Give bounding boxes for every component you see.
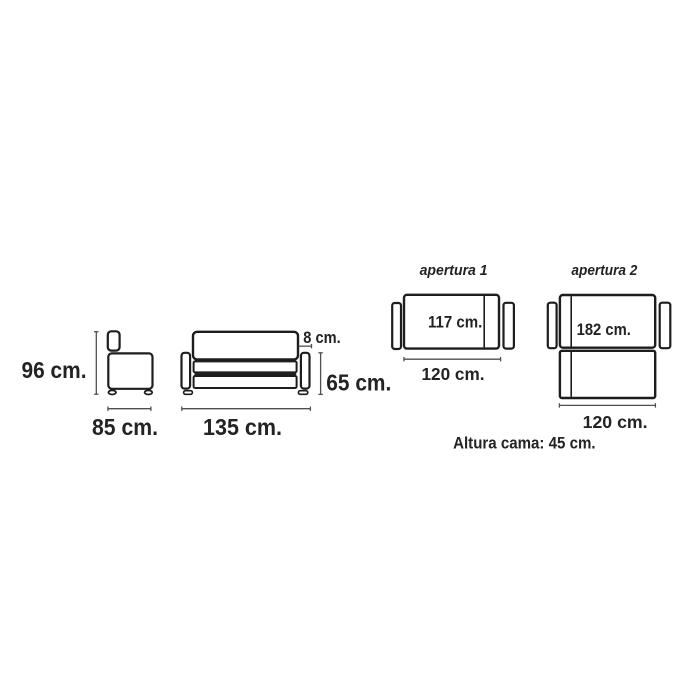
svg-text:apertura 1: apertura 1 (420, 262, 488, 279)
svg-text:120 cm.: 120 cm. (583, 412, 648, 432)
svg-text:182 cm.: 182 cm. (577, 320, 631, 339)
svg-text:Altura cama: 45 cm.: Altura cama: 45 cm. (453, 435, 595, 453)
svg-text:120 cm.: 120 cm. (422, 364, 485, 384)
svg-text:apertura 2: apertura 2 (571, 262, 638, 279)
svg-text:135 cm.: 135 cm. (203, 414, 282, 440)
svg-text:96 cm.: 96 cm. (22, 357, 87, 383)
svg-text:117 cm.: 117 cm. (428, 313, 482, 332)
svg-text:85 cm.: 85 cm. (92, 414, 158, 440)
svg-text:65 cm.: 65 cm. (326, 370, 391, 396)
svg-text:8 cm.: 8 cm. (303, 329, 340, 347)
